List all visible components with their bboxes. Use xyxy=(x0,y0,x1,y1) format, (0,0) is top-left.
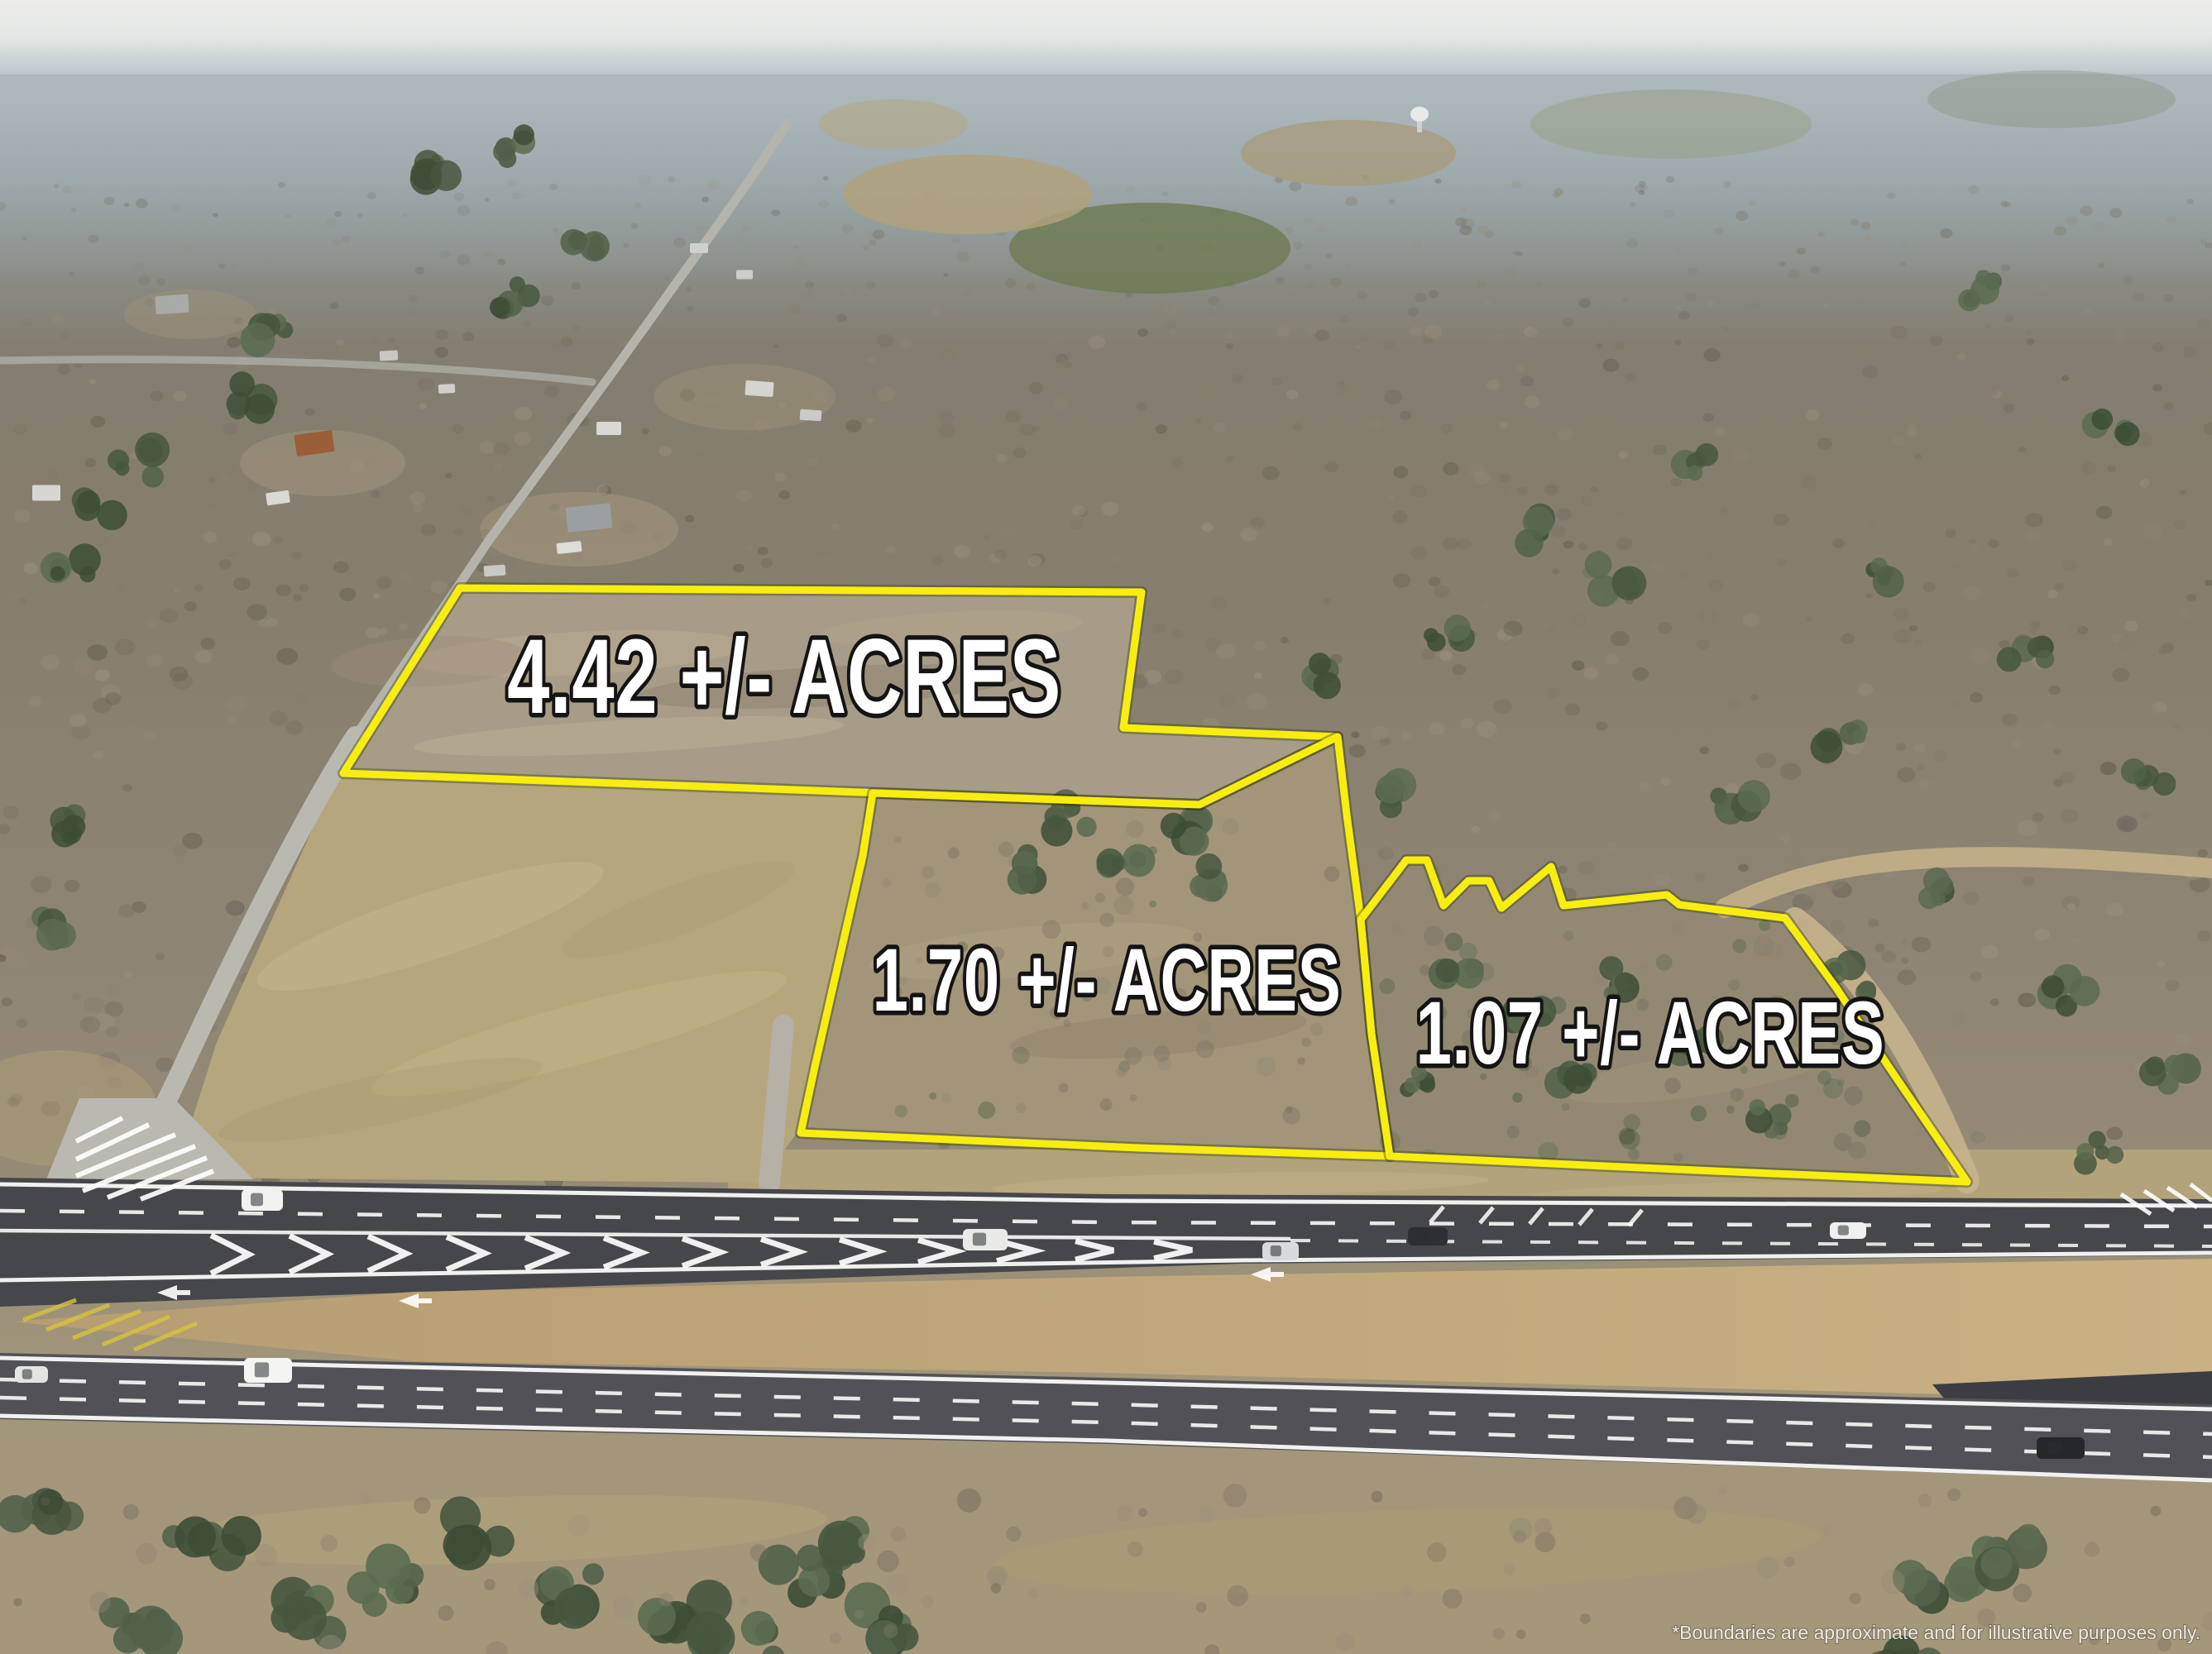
house xyxy=(745,380,773,397)
acreage-label-4.42: 4.42 +/- ACRES xyxy=(507,617,1061,735)
vehicle xyxy=(1408,1227,1448,1245)
vehicle xyxy=(1262,1242,1299,1260)
acreage-label-1.07: 1.07 +/- ACRES xyxy=(1416,982,1885,1083)
house xyxy=(32,485,60,501)
boundaries-disclaimer: *Boundaries are approximate and for illu… xyxy=(1672,1622,2200,1643)
water-tower-tank xyxy=(1410,107,1429,122)
vehicle xyxy=(2037,1437,2085,1459)
house xyxy=(566,503,613,532)
house xyxy=(800,409,822,422)
house xyxy=(736,270,753,280)
vehicle xyxy=(15,1366,48,1383)
house xyxy=(596,422,621,435)
house xyxy=(155,294,189,315)
house xyxy=(438,384,456,394)
vehicle xyxy=(1830,1222,1866,1239)
vehicle xyxy=(242,1189,283,1211)
gravel-driveway xyxy=(769,1025,783,1183)
vehicle xyxy=(244,1358,292,1383)
house xyxy=(484,565,506,577)
vehicle xyxy=(963,1229,1008,1250)
aerial-parcel-photo: 4.42 +/- ACRES 1.70 +/- ACRES 1.07 +/- A… xyxy=(0,0,2212,1654)
house xyxy=(380,350,399,361)
house xyxy=(690,243,708,253)
acreage-label-1.70: 1.70 +/- ACRES xyxy=(873,930,1342,1030)
aerial-photo-stage: 4.42 +/- ACRES 1.70 +/- ACRES 1.07 +/- A… xyxy=(0,0,2212,1654)
